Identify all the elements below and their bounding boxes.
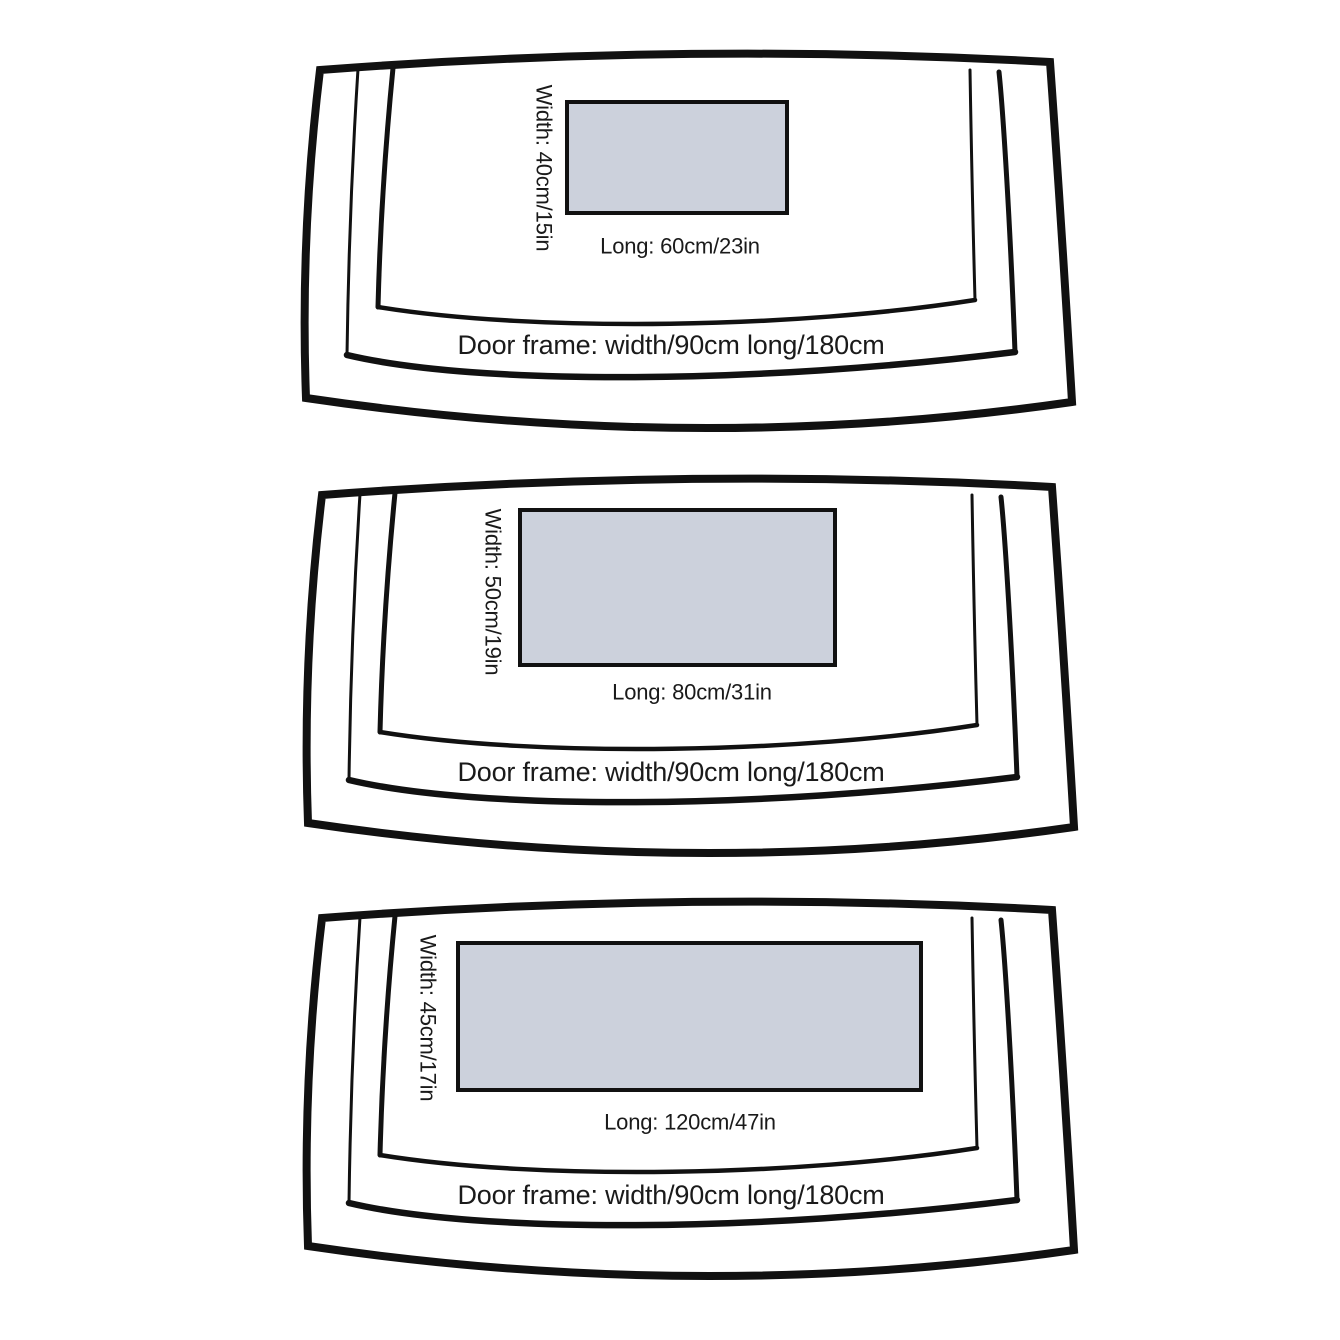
door-frame-middle-left-edge (349, 917, 360, 1203)
door-frame-middle-right-edge (1001, 497, 1017, 777)
door-frame-inner-bottom-edge (378, 300, 975, 324)
door-frame-inner-left-edge (380, 493, 395, 732)
door-frame-illustration-large: Width: 45cm/17in Long: 120cm/47in Door f… (300, 888, 1090, 1283)
door-frame-label: Door frame: width/90cm long/180cm (457, 330, 884, 360)
size-panel-medium: Width: 50cm/19in Long: 80cm/31in Door fr… (300, 465, 1090, 860)
door-frame-middle-left-edge (347, 69, 358, 355)
mat-width-label: Width: 45cm/17in (416, 935, 441, 1102)
size-panel-small: Width: 40cm/15in Long: 60cm/23in Door fr… (298, 40, 1088, 435)
door-frame-inner-right-edge (972, 918, 977, 1148)
door-frame-inner-right-edge (970, 70, 975, 300)
mat-rectangle (520, 510, 835, 665)
door-frame-middle-right-edge (1001, 920, 1017, 1200)
mat-rectangle (567, 102, 787, 213)
door-frame-inner-left-edge (378, 68, 393, 307)
door-frame-inner-bottom-edge (380, 1148, 977, 1172)
door-frame-inner-right-edge (972, 495, 977, 725)
mat-width-label: Width: 40cm/15in (532, 85, 557, 252)
size-panel-large: Width: 45cm/17in Long: 120cm/47in Door f… (300, 888, 1090, 1283)
door-frame-illustration-small: Width: 40cm/15in Long: 60cm/23in Door fr… (298, 40, 1088, 435)
mat-rectangle (458, 943, 921, 1090)
door-frame-label: Door frame: width/90cm long/180cm (457, 1180, 884, 1210)
door-frame-middle-right-edge (999, 72, 1015, 352)
mat-long-label: Long: 120cm/47in (604, 1110, 776, 1135)
door-frame-inner-bottom-edge (380, 725, 977, 749)
door-frame-label: Door frame: width/90cm long/180cm (457, 757, 884, 787)
door-frame-illustration-medium: Width: 50cm/19in Long: 80cm/31in Door fr… (300, 465, 1090, 860)
mat-width-label: Width: 50cm/19in (481, 509, 506, 676)
mat-long-label: Long: 80cm/31in (612, 680, 772, 705)
door-frame-inner-left-edge (380, 916, 395, 1155)
mat-long-label: Long: 60cm/23in (600, 234, 760, 259)
door-frame-middle-left-edge (349, 494, 360, 780)
